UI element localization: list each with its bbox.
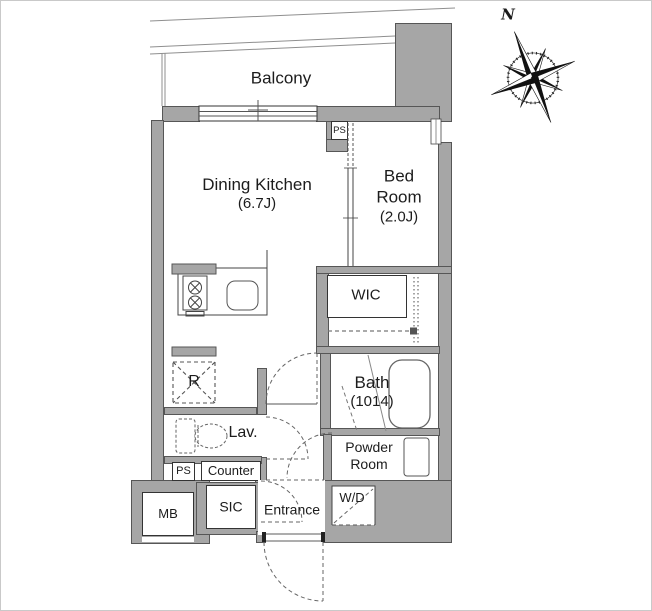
pipe-space-bottom-label: PS (176, 465, 191, 479)
bath-name: Bath (350, 372, 393, 393)
wall-bedroom-bottom (316, 266, 452, 274)
dining-kitchen-label: Dining Kitchen (6.7J) (202, 174, 312, 214)
wall-outer-right (438, 142, 452, 483)
wall-outer-left (151, 120, 164, 482)
bath-size: (1014) (350, 393, 393, 412)
wall-wic-bath-divider (316, 346, 440, 354)
dining-kitchen-size: (6.7J) (202, 195, 312, 214)
wall-bath-west (320, 353, 331, 433)
shoes-closet-label: SIC (217, 498, 244, 516)
bed-room-size: (2.0J) (376, 208, 421, 227)
bed-room-line1: Bed (376, 165, 421, 186)
lavatory-label: Lav. (228, 423, 257, 443)
compass-icon (473, 15, 593, 140)
dining-kitchen-name: Dining Kitchen (202, 174, 312, 195)
bath-label: Bath (1014) (350, 372, 393, 412)
powder-room-line1: Powder (345, 439, 392, 456)
meter-box-label: MB (158, 506, 178, 522)
wall-window-left (162, 106, 200, 122)
wall-window-right (316, 106, 440, 122)
wall-powder-west (323, 434, 332, 482)
bed-room-label: Bed Room (2.0J) (376, 165, 421, 226)
powder-room-line2: Room (345, 456, 392, 473)
wall-lav-top (164, 407, 257, 415)
wall-bath-powder-divider (320, 428, 440, 436)
powder-room-label: Powder Room (345, 439, 392, 473)
washer-dryer-label: W/D (339, 490, 364, 506)
wall-corridor-post (257, 368, 267, 415)
wic-label: WIC (351, 287, 380, 306)
pipe-space-top-label: PS (333, 125, 346, 137)
refrigerator-label: R (188, 372, 200, 392)
compass-north-label: N (501, 6, 515, 25)
entrance-label: Entrance (264, 501, 320, 519)
meter-box-door (142, 537, 194, 542)
floor-plan: Balcony Dining Kitchen (6.7J) Bed Room (… (0, 0, 652, 611)
wall-ps-pocket-bottom (326, 139, 348, 152)
balcony-label: Balcony (251, 67, 311, 88)
counter-label: Counter (208, 463, 254, 479)
bed-room-line2: Room (376, 187, 421, 208)
